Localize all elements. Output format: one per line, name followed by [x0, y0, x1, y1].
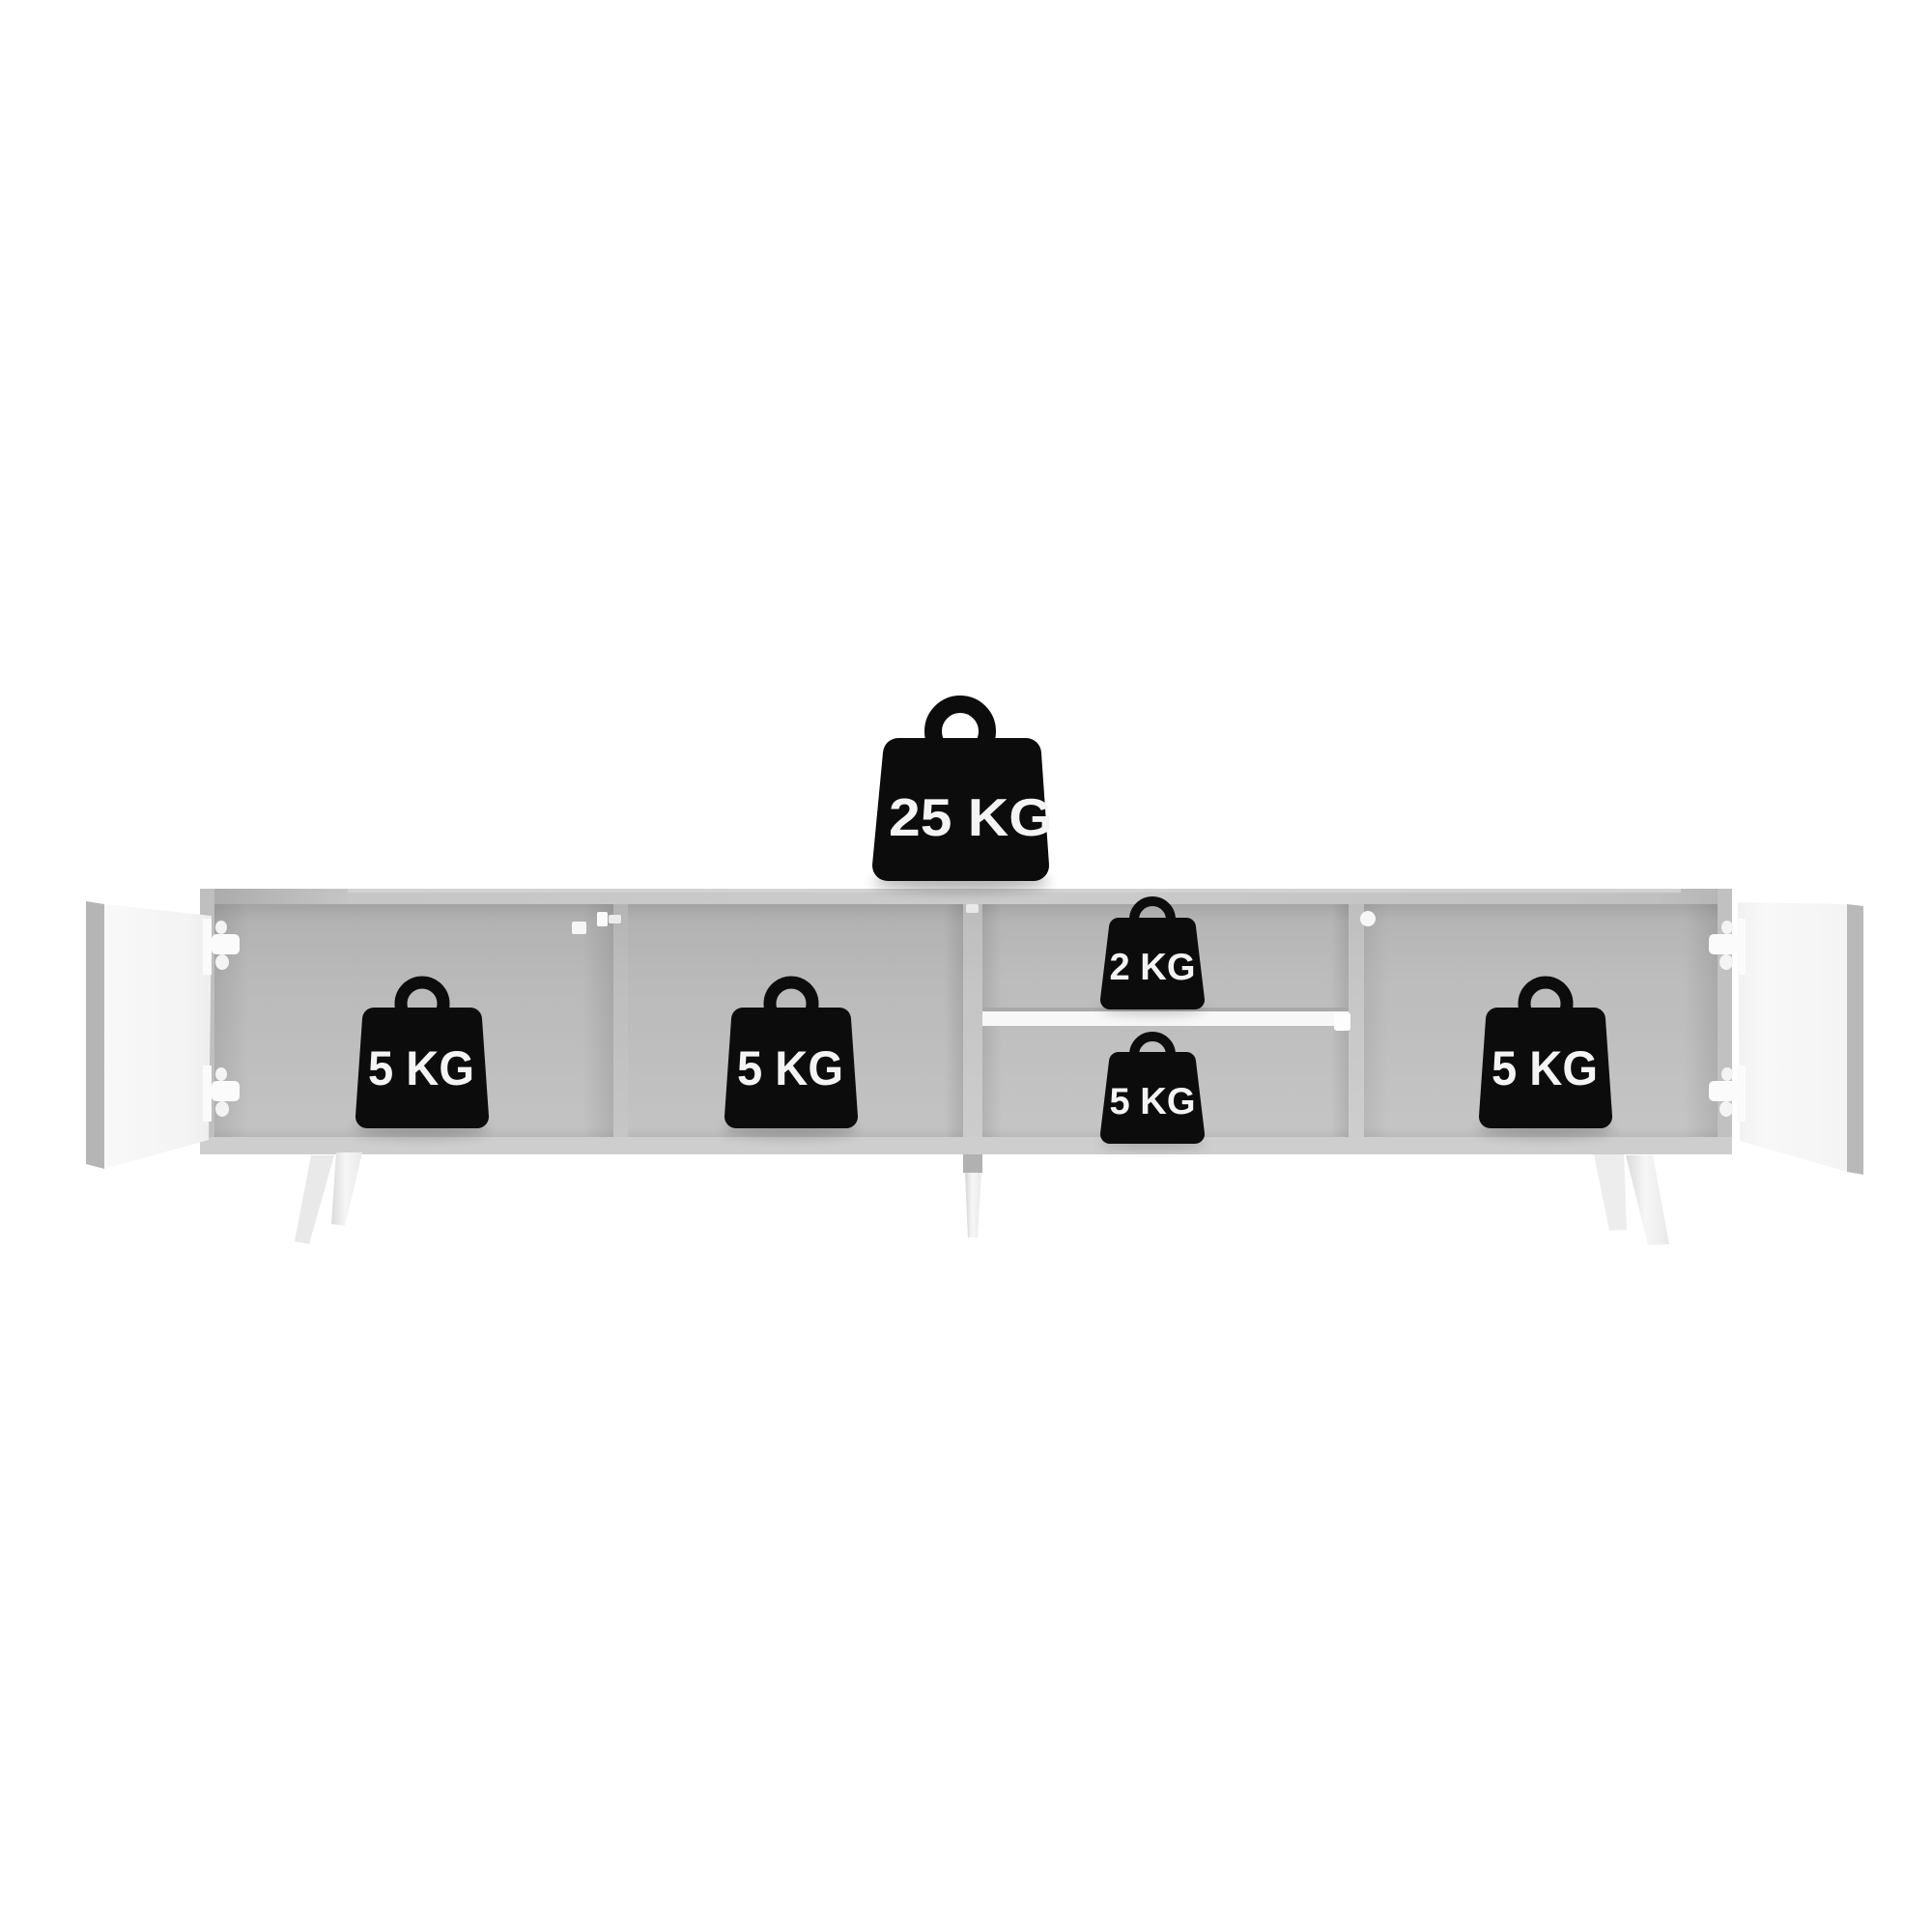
svg-text:5 KG: 5 KG	[1492, 1041, 1598, 1095]
svg-text:5 KG: 5 KG	[368, 1041, 474, 1095]
svg-text:25 KG: 25 KG	[889, 787, 1053, 847]
svg-text:5 KG: 5 KG	[737, 1041, 843, 1095]
svg-text:5 KG: 5 KG	[1110, 1081, 1196, 1122]
svg-text:2 KG: 2 KG	[1110, 947, 1196, 988]
